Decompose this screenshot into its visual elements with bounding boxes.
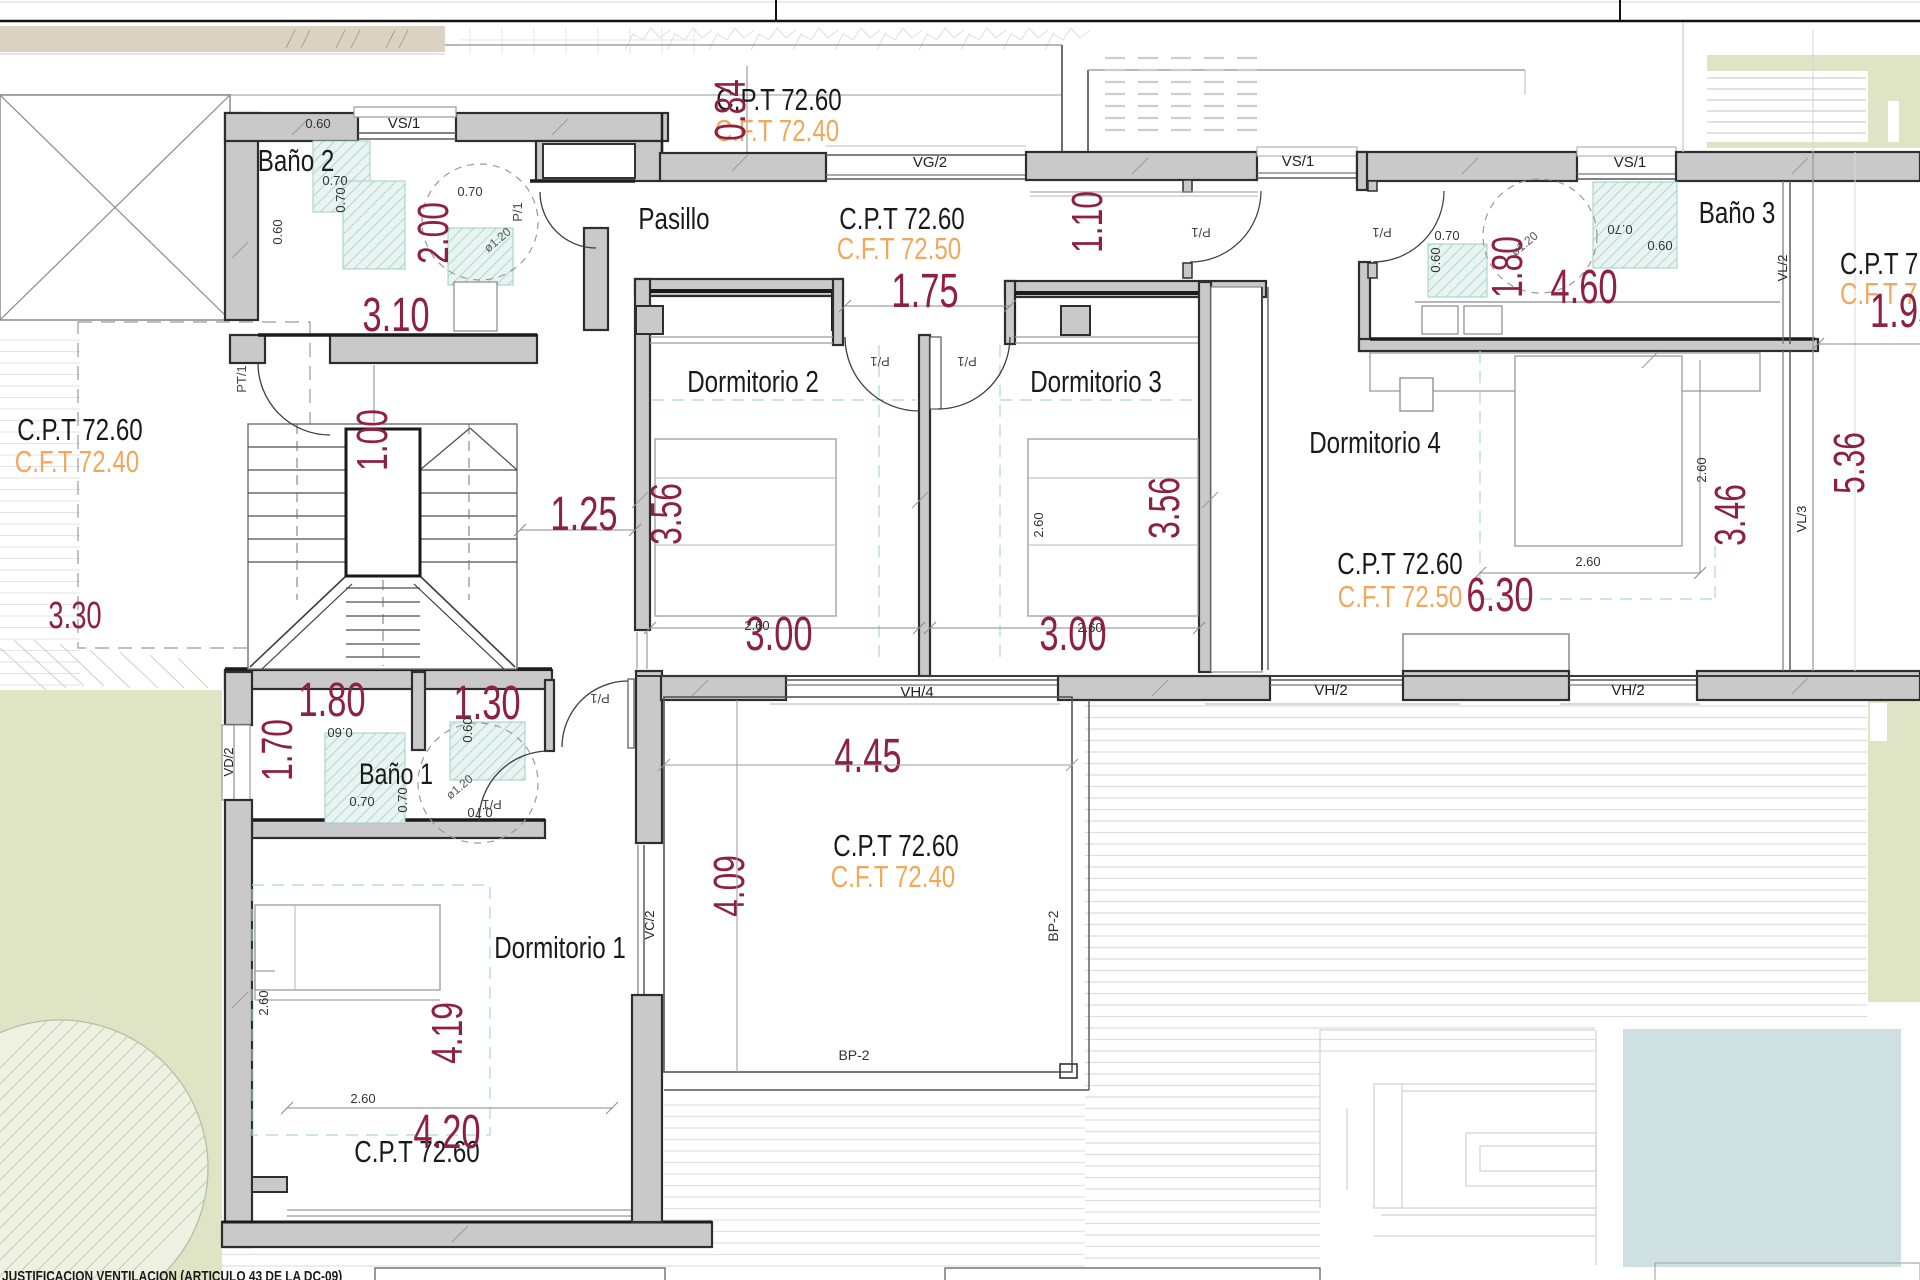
svg-text:JUSTIFICACION VENTILACION (ART: JUSTIFICACION VENTILACION (ARTICULO 43 D… (2, 1268, 342, 1280)
svg-text:2.60: 2.60 (744, 618, 769, 633)
svg-text:2.00: 2.00 (409, 202, 458, 264)
svg-text:0.70: 0.70 (1434, 228, 1459, 243)
svg-text:VH/4: VH/4 (900, 684, 933, 701)
svg-text:BP-2: BP-2 (838, 1047, 869, 1063)
svg-text:VS/1: VS/1 (1614, 154, 1647, 171)
svg-text:P/1: P/1 (1191, 225, 1211, 240)
svg-text:5.36: 5.36 (1825, 432, 1874, 494)
svg-text:Dormitorio 1: Dormitorio 1 (494, 930, 626, 965)
svg-text:4.20: 4.20 (413, 1104, 480, 1158)
svg-text:VG/2: VG/2 (913, 154, 947, 171)
svg-text:P/1: P/1 (590, 691, 610, 706)
svg-text:2.60: 2.60 (256, 990, 271, 1015)
svg-text:3.46: 3.46 (1706, 484, 1755, 546)
svg-text:3.30: 3.30 (48, 595, 101, 637)
svg-text:P/1: P/1 (870, 354, 890, 369)
svg-text:VC/2: VC/2 (642, 911, 657, 940)
svg-text:2.60: 2.60 (350, 1091, 375, 1106)
svg-text:2.60: 2.60 (1077, 620, 1102, 635)
svg-text:1.25: 1.25 (550, 486, 617, 540)
svg-text:0.70: 0.70 (349, 794, 374, 809)
svg-text:4.09: 4.09 (705, 855, 754, 917)
svg-text:0.60: 0.60 (270, 219, 285, 244)
svg-text:3.10: 3.10 (362, 287, 429, 341)
svg-text:Baño 3: Baño 3 (1699, 195, 1776, 230)
svg-text:Dormitorio 4: Dormitorio 4 (1309, 425, 1441, 460)
svg-text:VD/2: VD/2 (221, 748, 236, 777)
svg-text:0.70: 0.70 (333, 187, 348, 212)
svg-text:1.00: 1.00 (348, 409, 397, 471)
svg-text:2.60: 2.60 (1031, 512, 1046, 537)
svg-text:0.70: 0.70 (322, 173, 347, 188)
svg-text:1.80: 1.80 (298, 672, 365, 726)
svg-text:P/1: P/1 (510, 202, 525, 222)
svg-text:4.45: 4.45 (834, 728, 901, 782)
svg-text:2.60: 2.60 (1575, 554, 1600, 569)
svg-text:Baño 1: Baño 1 (359, 757, 433, 790)
svg-text:0.60: 0.60 (305, 116, 330, 131)
svg-text:6.30: 6.30 (1466, 567, 1533, 621)
svg-text:1.10: 1.10 (1063, 191, 1112, 253)
svg-text:0.84: 0.84 (706, 79, 755, 141)
svg-text:4.60: 4.60 (1550, 259, 1617, 313)
svg-text:3.00: 3.00 (745, 606, 812, 660)
svg-text:C.P.T 72.60: C.P.T 72.60 (833, 828, 958, 863)
svg-text:0.70: 0.70 (1607, 222, 1632, 237)
svg-text:1.75: 1.75 (891, 263, 958, 317)
svg-text:C.F.T 72.50: C.F.T 72.50 (1338, 579, 1462, 614)
svg-text:PT/1: PT/1 (234, 365, 249, 392)
svg-text:VH/2: VH/2 (1314, 682, 1347, 699)
svg-text:VL/3: VL/3 (1794, 506, 1809, 533)
svg-text:0.60: 0.60 (327, 725, 352, 740)
svg-text:P/1: P/1 (1372, 225, 1392, 240)
svg-text:0.60: 0.60 (460, 717, 475, 742)
svg-text:C.F.T 72.40: C.F.T 72.40 (15, 444, 139, 479)
svg-text:0.70: 0.70 (395, 787, 410, 812)
svg-text:0.60: 0.60 (1428, 247, 1443, 272)
svg-text:VH/2: VH/2 (1611, 682, 1644, 699)
svg-text:C.F.T 72.50: C.F.T 72.50 (837, 231, 961, 266)
svg-text:4.19: 4.19 (423, 1002, 472, 1064)
svg-text:P/1: P/1 (957, 354, 977, 369)
svg-text:VS/1: VS/1 (1282, 153, 1315, 170)
svg-text:0.70: 0.70 (457, 184, 482, 199)
svg-text:0.60: 0.60 (1647, 238, 1672, 253)
svg-text:Pasillo: Pasillo (638, 201, 709, 236)
svg-text:P/1: P/1 (482, 797, 502, 812)
svg-text:VS/1: VS/1 (388, 115, 421, 132)
svg-text:C.P.T 72.60: C.P.T 72.60 (17, 412, 142, 447)
svg-text:VL/2: VL/2 (1775, 255, 1790, 282)
svg-text:C.P.T 72.60: C.P.T 72.60 (1337, 546, 1462, 581)
svg-text:3.56: 3.56 (1140, 477, 1189, 539)
svg-text:1.95: 1.95 (1870, 283, 1920, 337)
svg-text:3.56: 3.56 (642, 483, 691, 545)
svg-text:BP-2: BP-2 (1045, 910, 1061, 941)
svg-text:Dormitorio 3: Dormitorio 3 (1030, 364, 1162, 399)
svg-text:Dormitorio 2: Dormitorio 2 (687, 364, 819, 399)
svg-text:2.60: 2.60 (1694, 457, 1709, 482)
svg-text:C.F.T 72.40: C.F.T 72.40 (831, 859, 955, 894)
svg-text:1.70: 1.70 (253, 719, 302, 781)
